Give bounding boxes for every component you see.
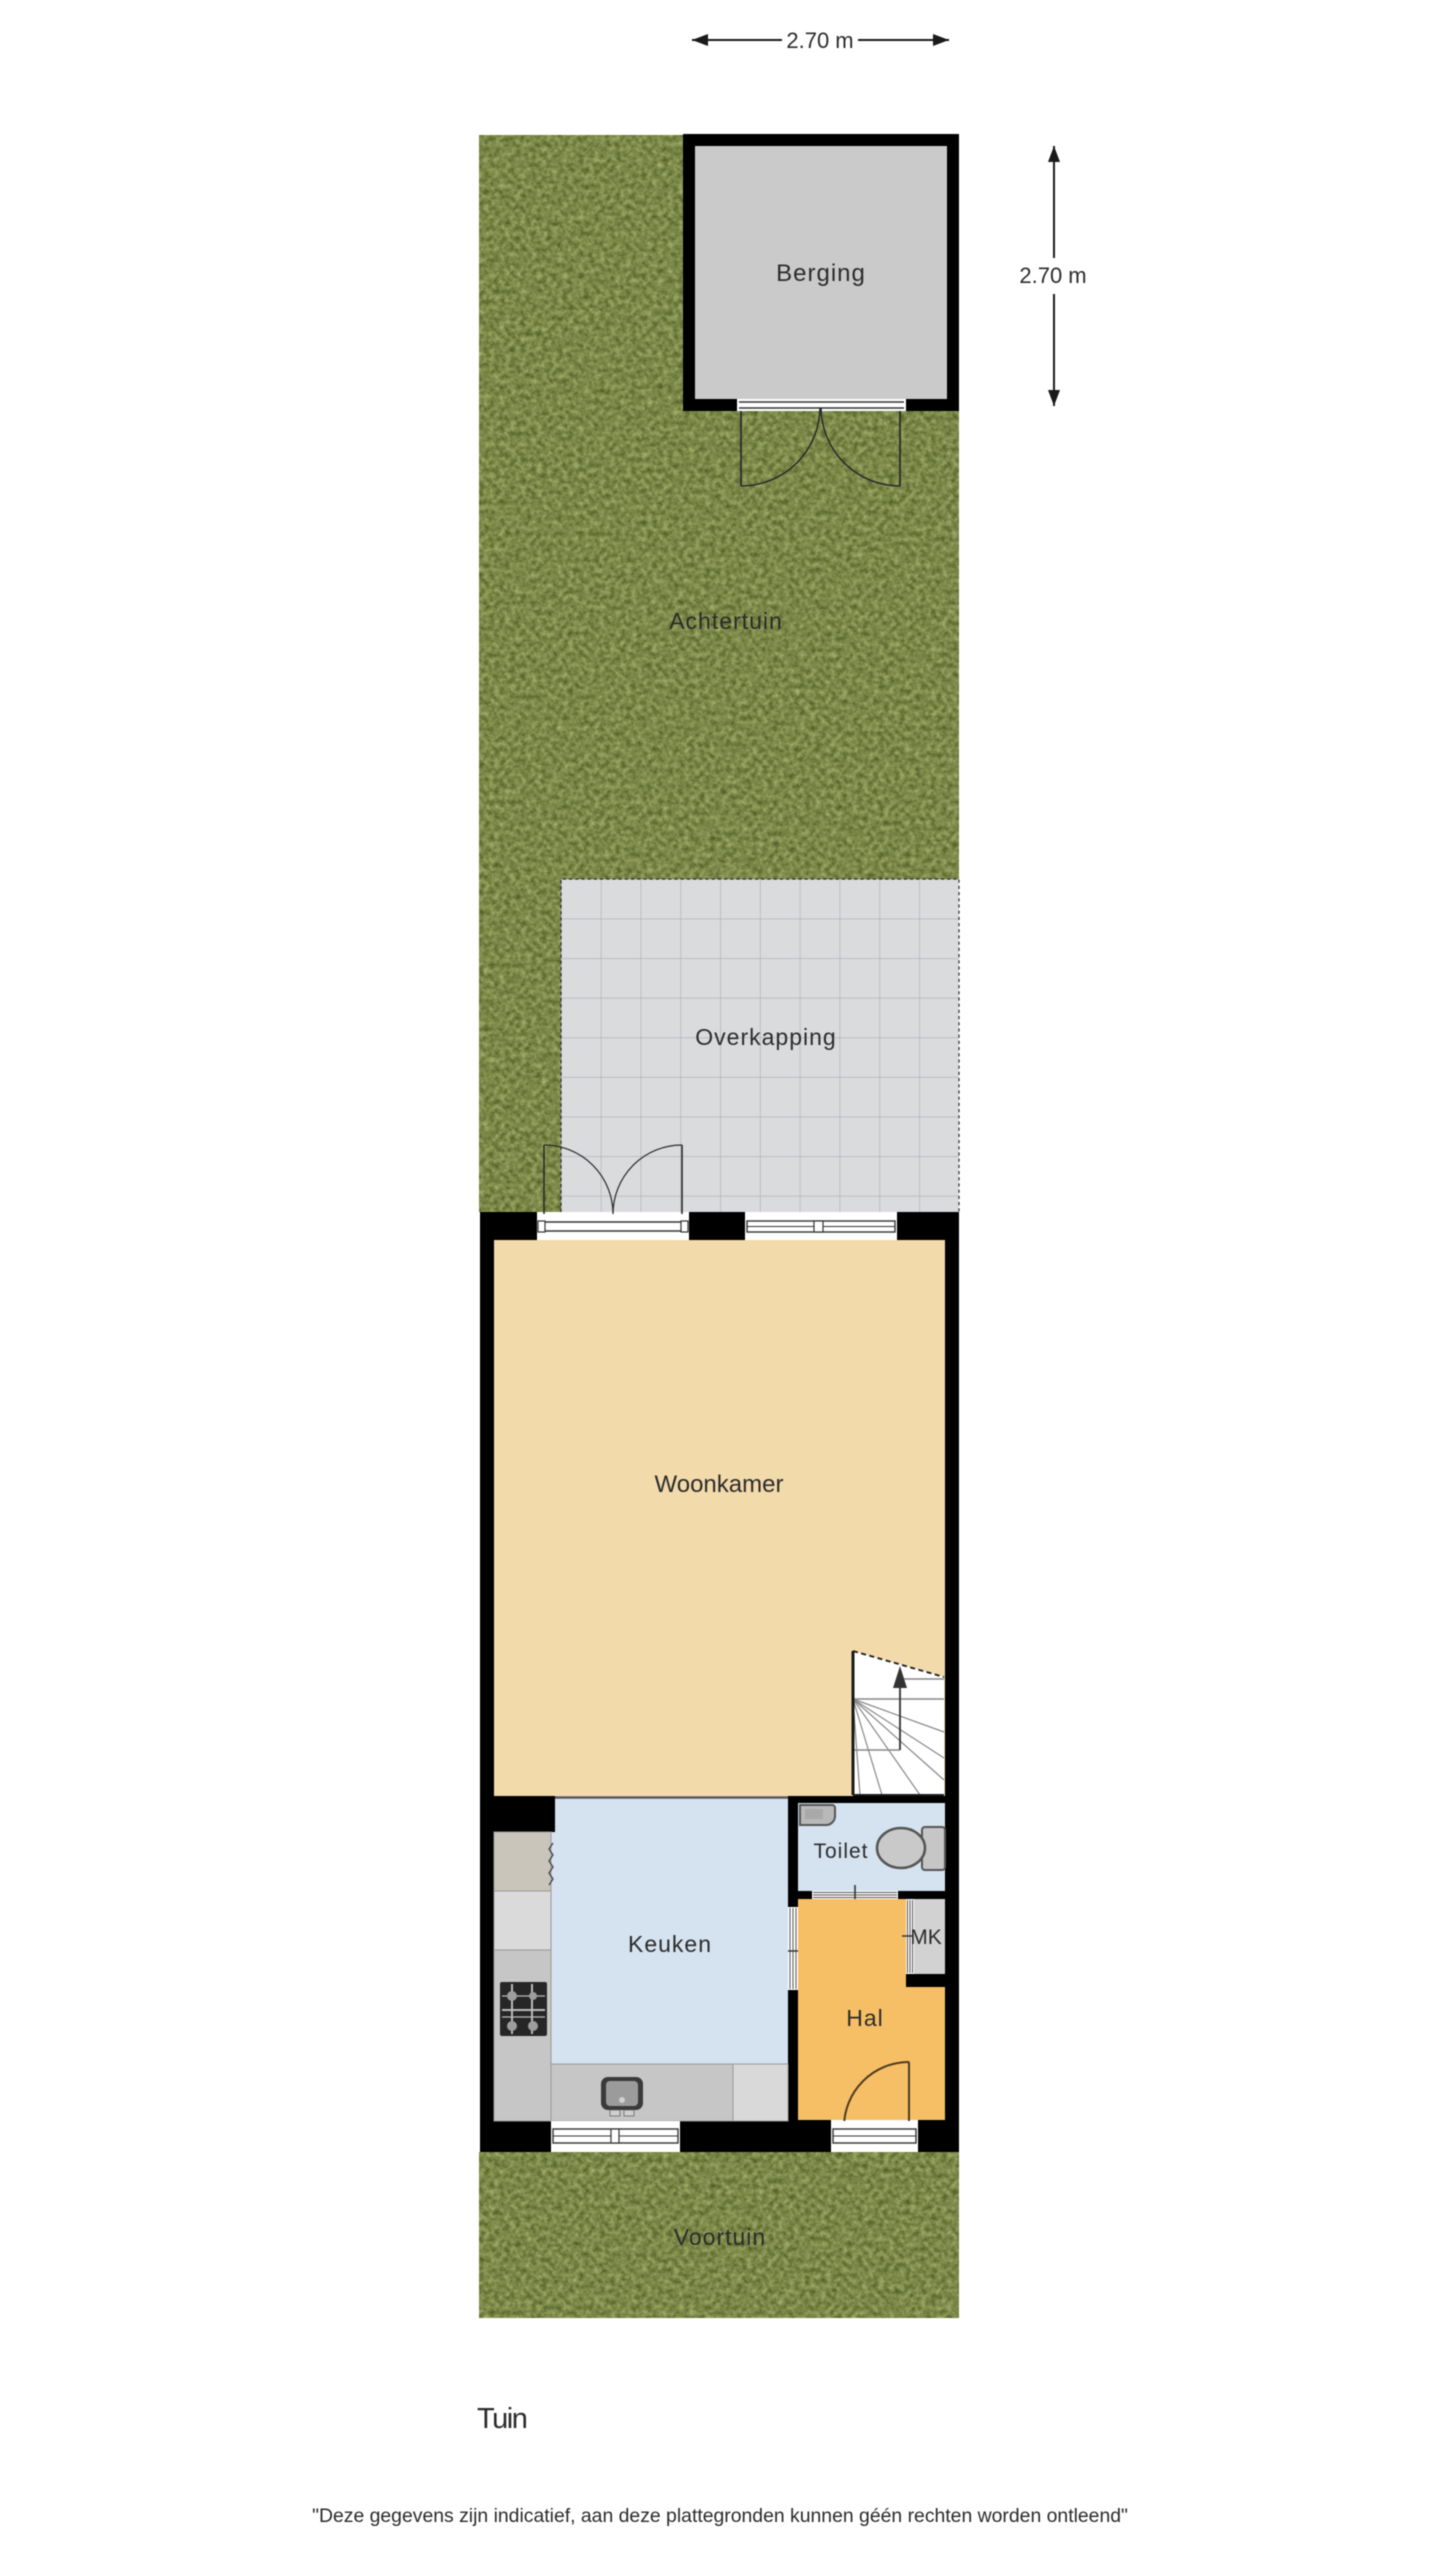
svg-text:Keuken: Keuken xyxy=(628,1931,712,1957)
svg-text:Voortuin: Voortuin xyxy=(674,2224,766,2250)
svg-text:Berging: Berging xyxy=(776,260,866,287)
svg-text:Tuin: Tuin xyxy=(477,2403,527,2435)
svg-text:MK: MK xyxy=(910,1926,942,1949)
svg-text:2.70 m: 2.70 m xyxy=(1019,263,1086,288)
svg-text:Overkapping: Overkapping xyxy=(695,1024,836,1050)
svg-text:Toilet: Toilet xyxy=(813,1840,868,1863)
svg-text:"Deze gegevens zijn indicatief: "Deze gegevens zijn indicatief, aan deze… xyxy=(312,2505,1128,2527)
svg-text:Achtertuin: Achtertuin xyxy=(669,608,783,634)
svg-text:Woonkamer: Woonkamer xyxy=(655,1471,784,1498)
svg-text:2.70 m: 2.70 m xyxy=(786,28,853,53)
svg-text:Hal: Hal xyxy=(846,2005,884,2031)
